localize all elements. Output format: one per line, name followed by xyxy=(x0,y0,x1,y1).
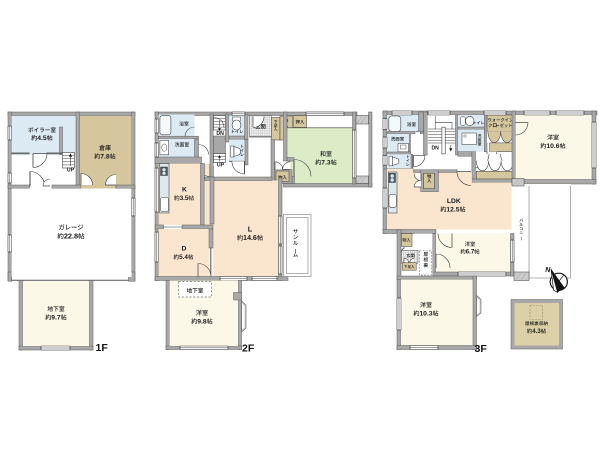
svg-text:5.4: 5.4 xyxy=(179,254,188,261)
svg-text:7.3: 7.3 xyxy=(321,160,331,167)
svg-text:L: L xyxy=(248,225,253,234)
svg-text:LDK: LDK xyxy=(447,198,461,205)
svg-text:7.8: 7.8 xyxy=(100,154,110,161)
svg-text:UP: UP xyxy=(217,163,225,169)
svg-text:ロ: ロ xyxy=(492,123,497,129)
svg-text:3.5: 3.5 xyxy=(180,195,189,202)
svg-text:10.3: 10.3 xyxy=(419,311,432,318)
svg-text:D: D xyxy=(181,246,186,253)
svg-text:K: K xyxy=(182,187,187,194)
svg-text:12.5: 12.5 xyxy=(446,207,459,214)
svg-text:1F: 1F xyxy=(96,342,109,354)
svg-text:4.3: 4.3 xyxy=(532,328,541,335)
svg-text:10.6: 10.6 xyxy=(546,143,559,150)
svg-text:2F: 2F xyxy=(242,343,255,355)
svg-text:UP: UP xyxy=(67,168,75,174)
svg-text:DN: DN xyxy=(431,146,439,152)
svg-text:9.8: 9.8 xyxy=(197,319,207,326)
svg-text:9.7: 9.7 xyxy=(51,315,61,322)
svg-text:3F: 3F xyxy=(475,343,488,355)
svg-text:4.5: 4.5 xyxy=(37,135,47,142)
svg-text:6.7: 6.7 xyxy=(466,249,475,256)
svg-text:22.8: 22.8 xyxy=(64,232,78,241)
svg-text:14.6: 14.6 xyxy=(243,235,257,242)
